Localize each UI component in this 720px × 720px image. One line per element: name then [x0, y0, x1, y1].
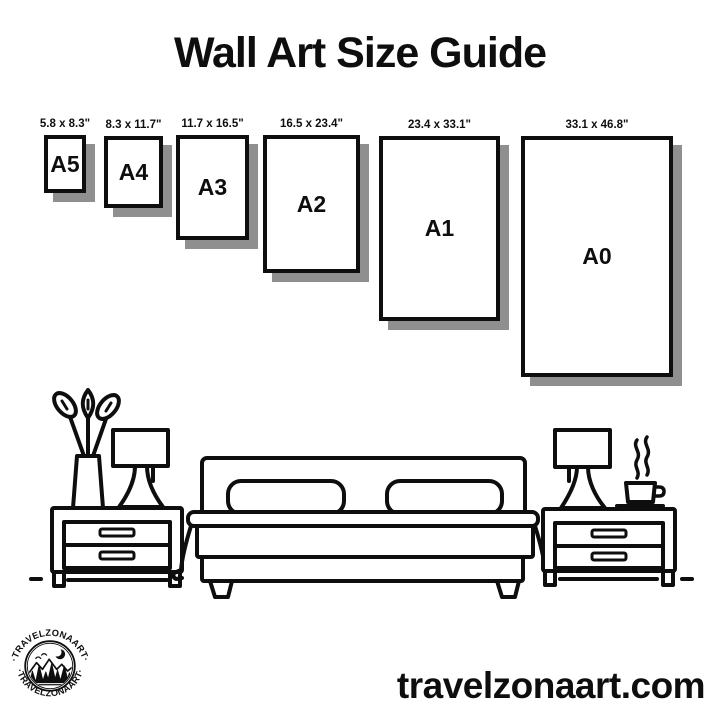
size-letter-a5: A5 [50, 151, 79, 178]
size-dimensions-a5: 5.8 x 8.3" [40, 118, 90, 130]
size-letter-a3: A3 [198, 174, 227, 201]
size-dimensions-a2: 16.5 x 23.4" [280, 118, 343, 130]
paper-sheet-a4: A4 [104, 136, 163, 208]
size-panel-a2: 16.5 x 23.4" A2 [263, 135, 360, 273]
size-panel-a0: 33.1 x 46.8" A0 [521, 136, 673, 377]
table-lamp-right-icon [555, 430, 610, 508]
paper-sheet-a0: A0 [521, 136, 673, 377]
double-bed-icon [173, 458, 550, 597]
pine-trees-icon [30, 663, 73, 681]
size-panel-a5: 5.8 x 8.3" A5 [44, 135, 86, 193]
size-guide-page: Wall Art Size Guide 5.8 x 8.3" A5 8.3 x … [0, 0, 720, 720]
size-letter-a2: A2 [297, 191, 326, 218]
brand-logo: ·TRAVELZONAART· ·TRAVELZONAART· [8, 622, 92, 710]
size-letter-a4: A4 [119, 159, 148, 186]
size-panel-a4: 8.3 x 11.7" A4 [104, 136, 163, 208]
coffee-cup-icon [617, 437, 664, 506]
size-panel-a3: 11.7 x 16.5" A3 [176, 135, 249, 240]
nightstand-right-icon [543, 509, 675, 585]
size-letter-a1: A1 [425, 215, 454, 242]
size-panel-a1: 23.4 x 33.1" A1 [379, 136, 500, 321]
nightstand-left-icon [52, 508, 182, 586]
size-dimensions-a4: 8.3 x 11.7" [106, 119, 162, 131]
size-dimensions-a3: 11.7 x 16.5" [181, 118, 243, 130]
size-dimensions-a1: 23.4 x 33.1" [408, 119, 471, 131]
size-dimensions-a0: 33.1 x 46.8" [565, 119, 628, 131]
paper-sheet-a3: A3 [176, 135, 249, 240]
website-url: travelzonaart.com [395, 666, 707, 706]
paper-sheet-a1: A1 [379, 136, 500, 321]
page-title: Wall Art Size Guide [0, 31, 720, 75]
table-lamp-left-icon [113, 430, 168, 507]
paper-sheet-a2: A2 [263, 135, 360, 273]
paper-sheet-a5: A5 [44, 135, 86, 193]
size-letter-a0: A0 [582, 243, 611, 270]
logo-brand-text-top: ·TRAVELZONAART· [9, 628, 91, 663]
birds-icon [36, 654, 47, 659]
bedroom-illustration [20, 380, 700, 605]
